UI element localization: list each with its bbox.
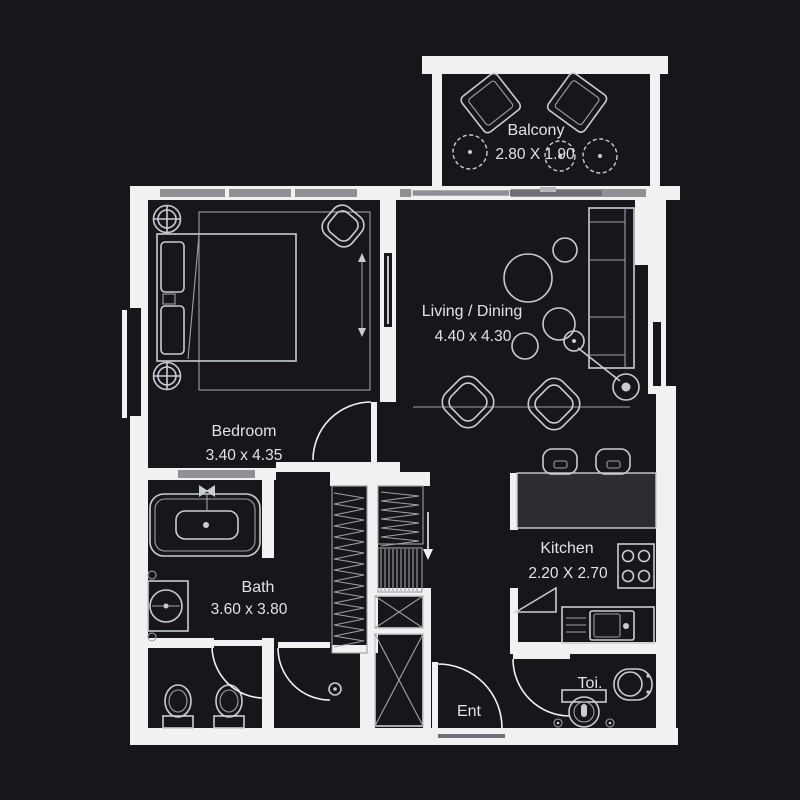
background xyxy=(0,0,800,800)
living-label: Living / Dining xyxy=(422,303,523,320)
bath-label: Bath xyxy=(242,579,275,596)
balcony-label: Balcony xyxy=(508,122,565,139)
bedroom-window xyxy=(160,189,357,197)
living-dims: 4.40 x 4.30 xyxy=(435,328,512,345)
bath-window xyxy=(178,470,255,478)
toilet-label: Toi. xyxy=(578,675,603,692)
bedroom-label: Bedroom xyxy=(212,423,277,440)
ceiling-lamp-icon xyxy=(154,363,181,390)
balcony-dims: 2.80 X 1.90 xyxy=(495,146,575,163)
kitchen-label: Kitchen xyxy=(540,540,593,557)
floor-plan: Balcony 2.80 X 1.90 Living / Dining 4.40… xyxy=(0,0,800,800)
ceiling-lamp-icon xyxy=(154,206,181,233)
entrance-label: Ent xyxy=(457,703,482,720)
kitchen-dims: 2.20 X 2.70 xyxy=(528,565,608,582)
entrance-threshold xyxy=(438,734,505,738)
bath-sink xyxy=(148,571,188,641)
kitchen-counter xyxy=(517,473,656,528)
bath-dims: 3.60 x 3.80 xyxy=(211,601,288,618)
bedroom-dims: 3.40 x 4.35 xyxy=(206,447,283,464)
